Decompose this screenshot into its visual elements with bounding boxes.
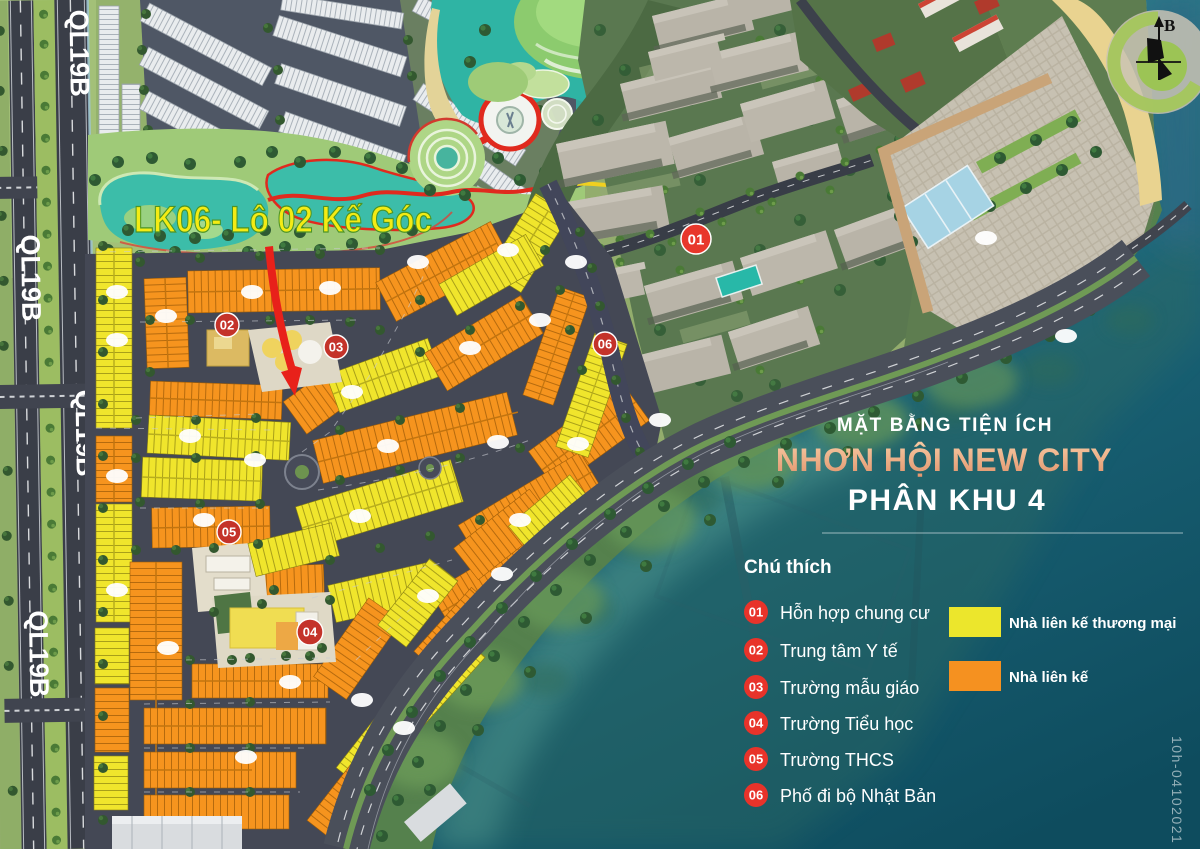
svg-text:NHƠN HỘI NEW CITY: NHƠN HỘI NEW CITY — [776, 442, 1112, 478]
svg-text:PHÂN KHU 4: PHÂN KHU 4 — [848, 483, 1046, 517]
svg-text:06: 06 — [598, 337, 612, 352]
svg-text:QL19B: QL19B — [23, 610, 54, 697]
svg-text:02: 02 — [749, 643, 763, 658]
svg-text:Trường THCS: Trường THCS — [780, 750, 894, 770]
svg-text:LK06- Lô 02 Kế Góc: LK06- Lô 02 Kế Góc — [134, 199, 432, 240]
svg-text:03: 03 — [749, 680, 763, 695]
svg-text:01: 01 — [749, 605, 763, 620]
svg-text:04: 04 — [303, 625, 318, 640]
svg-text:06: 06 — [749, 788, 763, 803]
svg-text:01: 01 — [688, 232, 705, 249]
svg-text:04: 04 — [749, 716, 764, 731]
svg-text:Chú thích: Chú thích — [744, 557, 832, 578]
svg-text:10h-04102021: 10h-04102021 — [1169, 736, 1185, 844]
svg-text:05: 05 — [222, 525, 236, 540]
svg-text:Hỗn hợp chung cư: Hỗn hợp chung cư — [780, 602, 930, 623]
svg-text:Trường Tiểu học: Trường Tiểu học — [780, 714, 913, 734]
svg-text:Phố đi bộ Nhật Bản: Phố đi bộ Nhật Bản — [780, 786, 936, 806]
svg-text:Nhà liên kế thương mại: Nhà liên kế thương mại — [1009, 615, 1176, 632]
svg-text:02: 02 — [220, 318, 234, 333]
svg-text:05: 05 — [749, 752, 763, 767]
svg-text:QL19B: QL19B — [63, 9, 94, 96]
svg-text:03: 03 — [329, 340, 343, 355]
svg-text:MẶT BẰNG TIỆN ÍCH: MẶT BẰNG TIỆN ÍCH — [837, 414, 1053, 436]
svg-text:Trường mẫu giáo: Trường mẫu giáo — [780, 677, 919, 698]
svg-text:Trung tâm Y tế: Trung tâm Y tế — [780, 641, 898, 661]
svg-text:Nhà liên kế: Nhà liên kế — [1009, 669, 1089, 686]
svg-text:B: B — [1164, 16, 1175, 35]
svg-text:QL19B: QL19B — [15, 234, 46, 321]
